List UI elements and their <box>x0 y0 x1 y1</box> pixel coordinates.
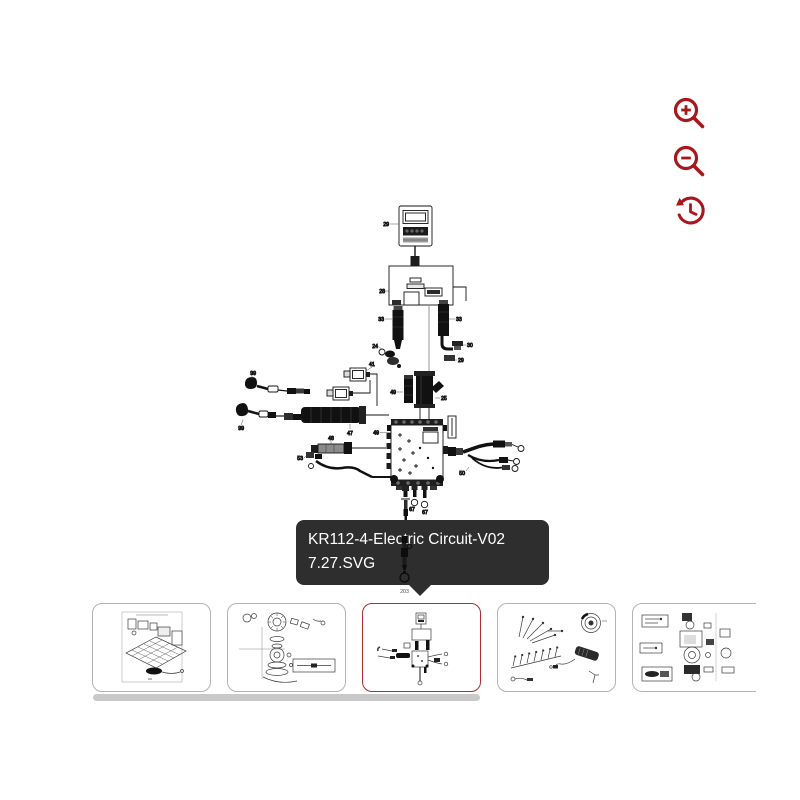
viewer-controls <box>671 96 709 230</box>
part-cable-99a <box>245 376 310 394</box>
part-label-29: 29 <box>383 222 389 228</box>
tooltip-filename-line2: 7.27.SVG <box>308 552 537 576</box>
thumbnail-electric-circuit[interactable] <box>362 603 481 692</box>
part-connector-53 <box>304 452 391 477</box>
part-harness-48 <box>311 441 386 454</box>
svg-parts-viewer: 29 28 <box>0 0 800 800</box>
thumbnail-fastener-kit-image <box>503 609 610 686</box>
part-label-49-solenoid: 49 <box>390 390 396 396</box>
part-control-box <box>387 416 457 486</box>
part-solenoid-49 <box>397 375 413 403</box>
part-label-30: 30 <box>467 343 473 349</box>
thumbnail-chassis-frame-image <box>98 609 205 686</box>
part-label-24: 24 <box>372 344 378 350</box>
part-label-99a: 99 <box>250 371 256 377</box>
part-label-41: 41 <box>369 362 375 368</box>
history-reset-icon <box>671 192 709 230</box>
part-label-47: 47 <box>347 431 353 437</box>
tooltip-filename-line1: KR112-4-Electric Circuit-V02 <box>308 528 537 552</box>
thumbnail-blade-deck-assembly[interactable] <box>227 603 346 692</box>
part-relays <box>327 367 377 406</box>
part-label-48: 48 <box>328 436 334 442</box>
part-label-67b: 67 <box>422 510 428 516</box>
part-label-67a: 67 <box>409 507 415 513</box>
zoom-in-button[interactable] <box>671 96 709 134</box>
reset-view-button[interactable] <box>671 192 709 230</box>
part-label-99b: 99 <box>238 426 244 432</box>
console-cable <box>411 246 420 266</box>
part-left-cylinder <box>379 306 404 368</box>
zoom-in-icon <box>671 96 709 134</box>
thumbnail-scrollbar-thumb[interactable] <box>93 694 480 701</box>
part-antennas <box>396 486 437 520</box>
part-display-console <box>390 206 432 246</box>
part-label-33-left: 33 <box>378 317 384 323</box>
part-cable-99b <box>236 403 301 425</box>
thumbnail-strip <box>92 603 756 693</box>
zoom-out-icon <box>671 144 709 182</box>
part-motor-25 <box>414 371 444 419</box>
part-label-49-line: 49 <box>373 431 379 437</box>
filename-tooltip: KR112-4-Electric Circuit-V02 7.27.SVG <box>296 520 549 585</box>
part-label-33-right: 33 <box>456 317 462 323</box>
thumbnail-electric-circuit-image <box>368 609 475 686</box>
part-harness-50 <box>448 441 524 472</box>
thumbnail-drive-assembly-image <box>638 609 756 686</box>
tooltip-arrow <box>408 584 432 596</box>
zoom-out-button[interactable] <box>671 144 709 182</box>
part-right-cylinder <box>438 300 466 361</box>
thumbnail-chassis-frame[interactable] <box>92 603 211 692</box>
thumbnail-fastener-kit[interactable] <box>497 603 616 692</box>
thumbnail-drive-assembly[interactable] <box>632 603 756 692</box>
part-label-28: 28 <box>379 289 385 295</box>
part-label-25: 25 <box>441 396 447 402</box>
part-label-29b: 29 <box>458 358 464 364</box>
part-harness-47 <box>301 406 392 433</box>
thumbnail-blade-deck-image <box>233 609 340 686</box>
part-label-50: 50 <box>459 471 465 477</box>
part-label-53: 53 <box>297 456 303 462</box>
